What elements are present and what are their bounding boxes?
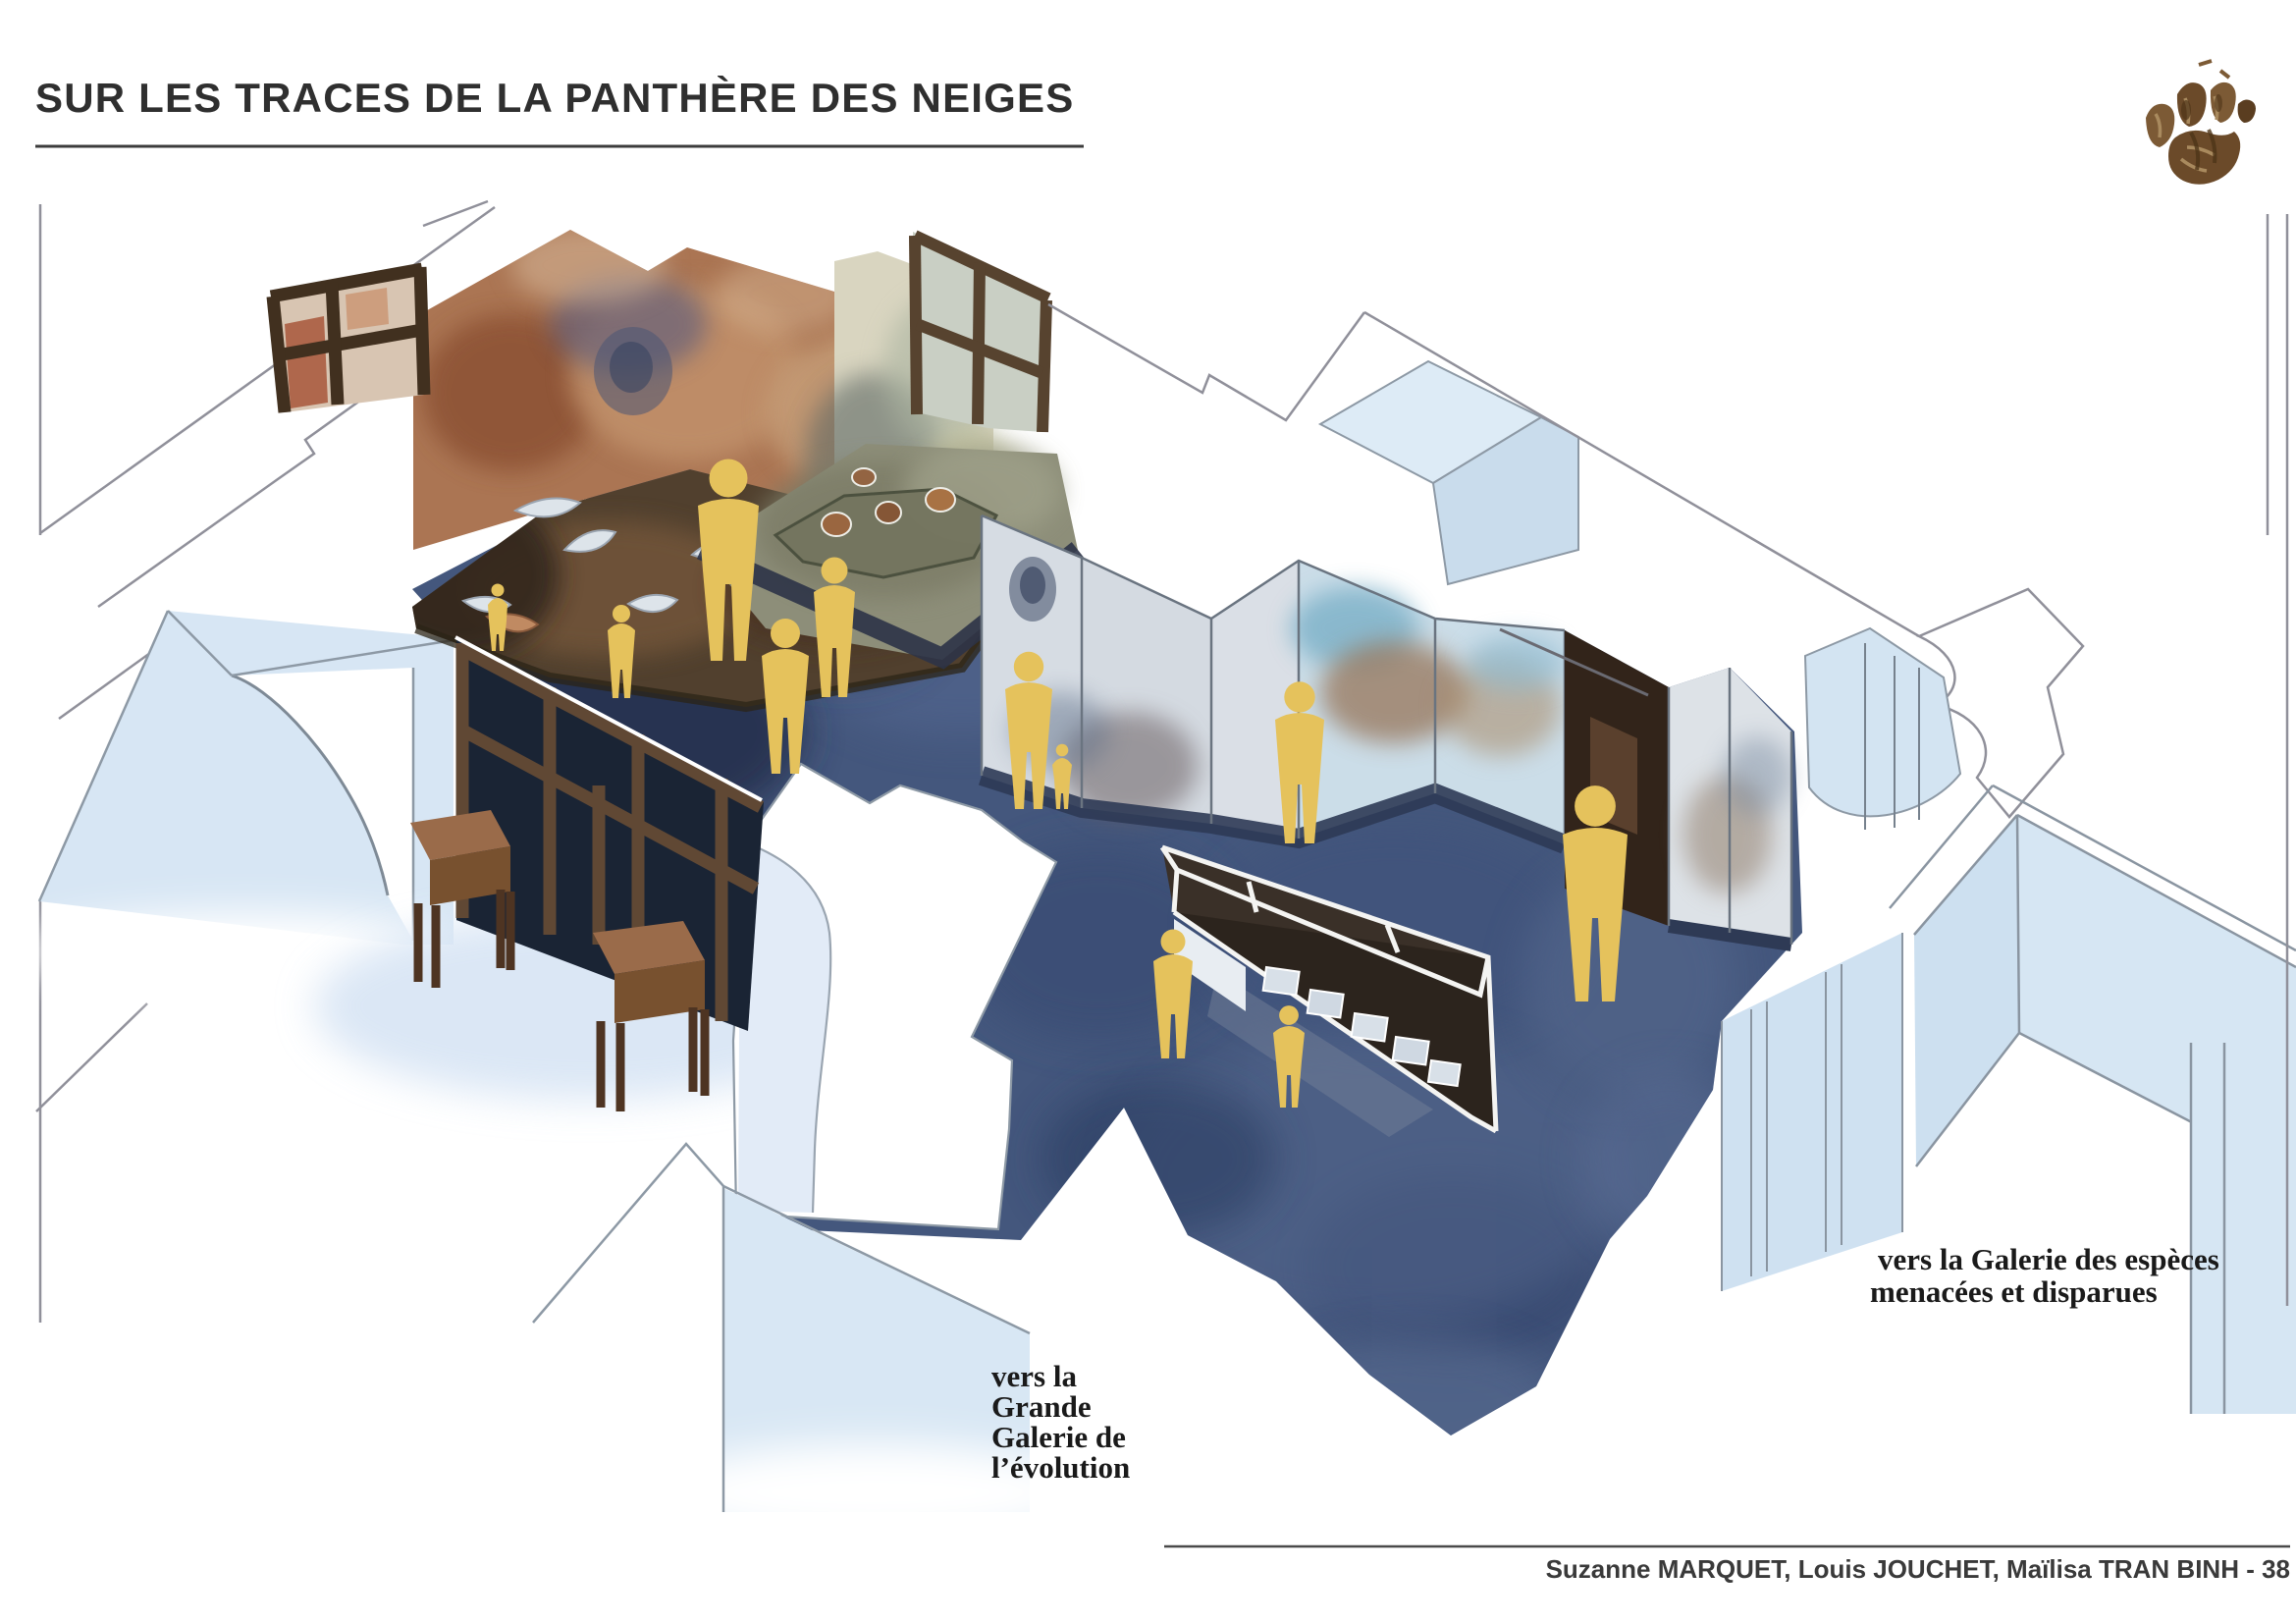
svg-text:SUR LES TRACES DE LA PANTHÈRE: SUR LES TRACES DE LA PANTHÈRE DES NEIGES [35,75,1074,121]
svg-text:Grande: Grande [991,1389,1092,1424]
svg-text:Suzanne MARQUET, Louis JOUCHET: Suzanne MARQUET, Louis JOUCHET, Maïlisa … [1546,1554,2290,1584]
svg-text:Galerie de: Galerie de [991,1420,1126,1454]
svg-text:menacées et disparues: menacées et disparues [1870,1274,2158,1309]
svg-text:l’évolution: l’évolution [991,1450,1130,1485]
svg-text:vers la: vers la [991,1359,1077,1393]
svg-text:vers la Galerie des espèces: vers la Galerie des espèces [1878,1242,2219,1276]
